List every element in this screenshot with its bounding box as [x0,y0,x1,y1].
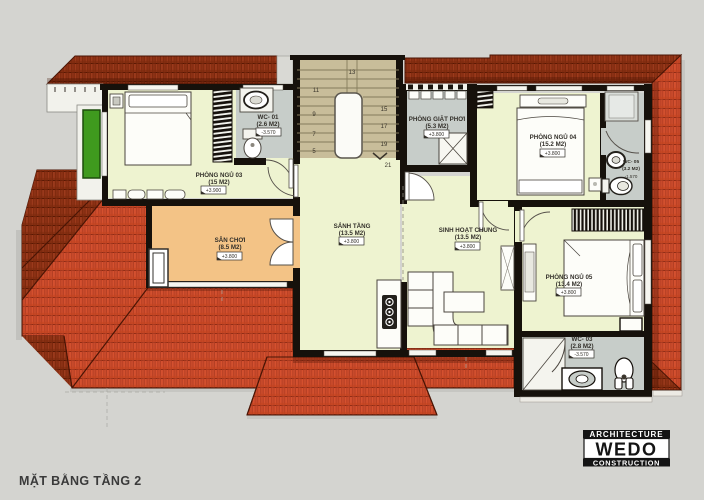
svg-text:19: 19 [381,142,388,148]
svg-text:+3.800: +3.800 [545,151,561,157]
svg-text:(2.8 M2): (2.8 M2) [570,343,593,350]
svg-text:+3.800: +3.800 [222,254,238,260]
svg-text:(15 M2): (15 M2) [208,179,229,186]
svg-text:11: 11 [313,88,320,94]
svg-text:ARCHITECTURE: ARCHITECTURE [590,430,664,439]
svg-text:WC- 03: WC- 03 [572,336,594,343]
svg-text:13: 13 [349,70,356,76]
svg-text:(8.5 M2): (8.5 M2) [218,244,241,251]
svg-text:PHÒNG NGỦ 03: PHÒNG NGỦ 03 [196,171,243,179]
svg-text:-1.570: -1.570 [625,174,638,179]
svg-text:SINH HOẠT CHUNG: SINH HOẠT CHUNG [439,227,498,234]
svg-text:SÂN CHƠI: SÂN CHƠI [215,237,246,244]
svg-text:MẶT BẰNG TẦNG 2: MẶT BẰNG TẦNG 2 [19,473,142,488]
svg-text:(3.2 M2): (3.2 M2) [622,166,640,172]
svg-text:WC- 05: WC- 05 [623,159,640,165]
svg-text:21: 21 [385,163,392,169]
svg-text:+3.900: +3.900 [206,188,222,194]
svg-text:(15.2 M2): (15.2 M2) [540,141,566,148]
svg-text:-3.570: -3.570 [574,352,588,358]
svg-text:PHÒNG NGỦ 05: PHÒNG NGỦ 05 [546,273,593,281]
svg-text:+3.800: +3.800 [429,132,445,138]
svg-text:(13.5 M2): (13.5 M2) [339,230,365,237]
svg-text:CONSTRUCTION: CONSTRUCTION [593,458,660,467]
svg-text:-3.570: -3.570 [261,130,275,136]
svg-text:(13.5 M2): (13.5 M2) [455,234,481,241]
svg-text:+3.800: +3.800 [344,239,360,245]
svg-text:PHÒNG NGỦ 04: PHÒNG NGỦ 04 [530,133,577,141]
svg-text:PHÒNG GIẶT PHƠI: PHÒNG GIẶT PHƠI [409,115,466,123]
svg-text:+3.800: +3.800 [561,290,577,296]
svg-text:SẢNH TẦNG: SẢNH TẦNG [334,223,371,230]
svg-text:WC- 01: WC- 01 [258,114,280,121]
svg-text:WEDO: WEDO [596,440,658,460]
svg-text:+3.800: +3.800 [460,244,476,250]
svg-text:(2.6 M2): (2.6 M2) [256,121,279,128]
svg-text:(13.4 M2): (13.4 M2) [556,281,582,288]
svg-text:15: 15 [381,107,388,113]
svg-text:(5.3 M2): (5.3 M2) [425,123,448,130]
svg-text:17: 17 [381,124,388,130]
